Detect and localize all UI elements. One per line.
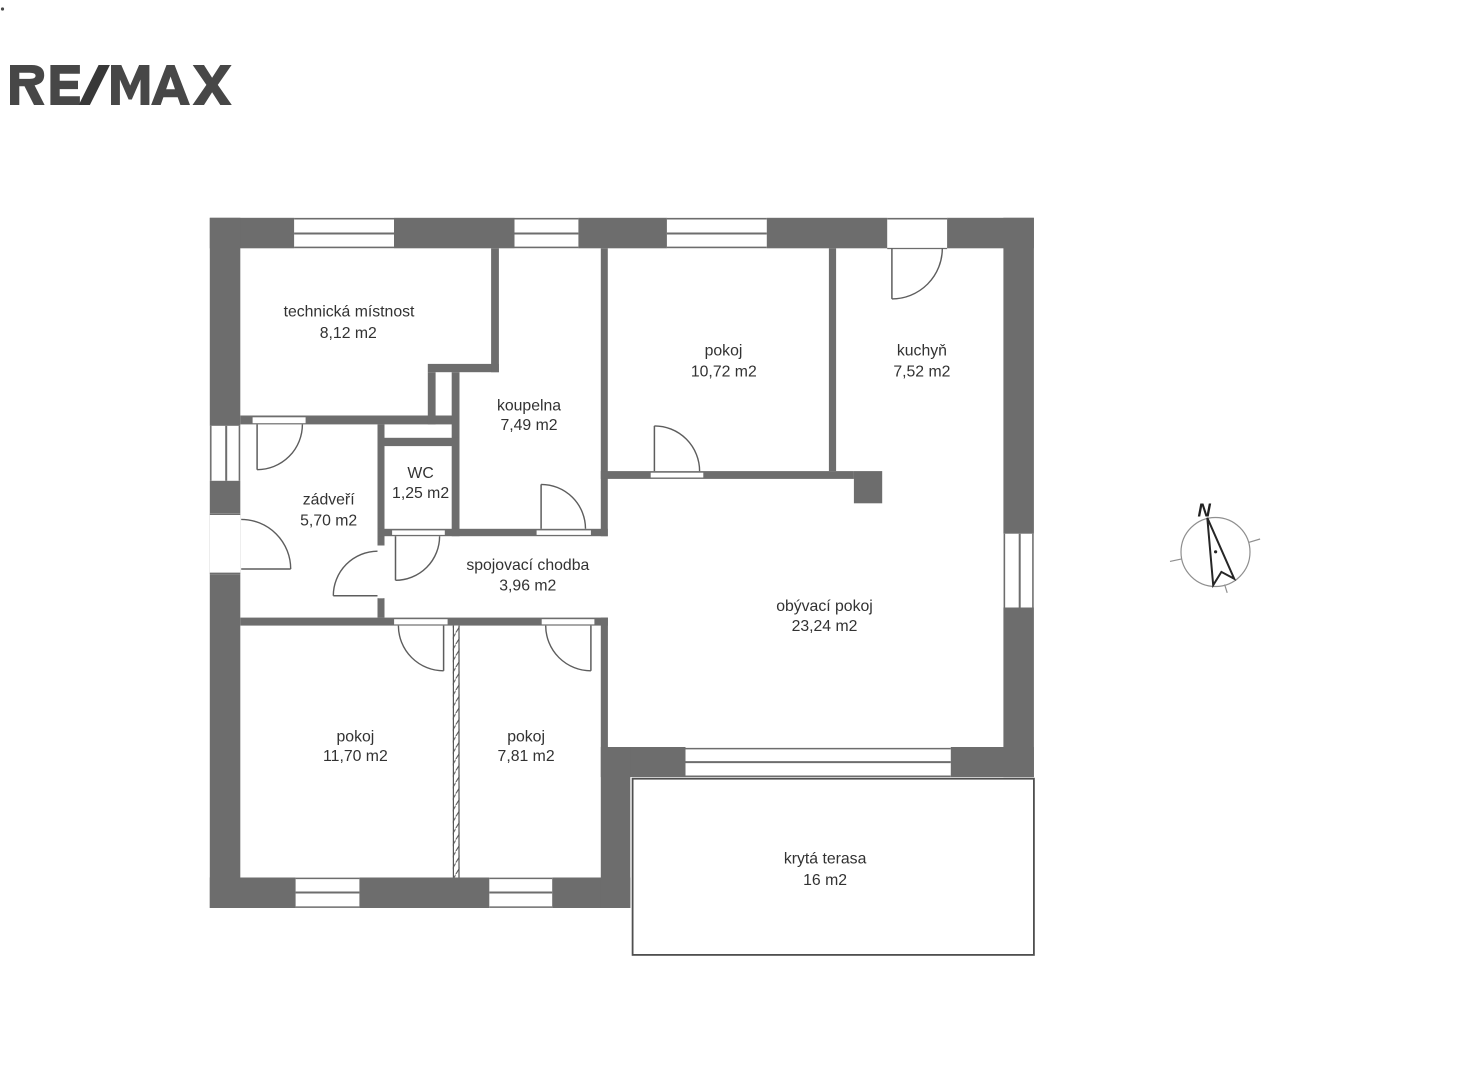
svg-text:pokoj: pokoj (507, 729, 545, 746)
svg-text:11,70 m2: 11,70 m2 (323, 748, 388, 765)
svg-text:N: N (1198, 499, 1212, 520)
svg-text:kuchyň: kuchyň (897, 343, 947, 360)
svg-text:7,81 m2: 7,81 m2 (498, 748, 555, 765)
svg-text:3,96 m2: 3,96 m2 (499, 578, 556, 595)
svg-text:WC: WC (407, 465, 433, 482)
svg-text:pokoj: pokoj (337, 729, 375, 746)
svg-text:pokoj: pokoj (705, 343, 743, 360)
svg-text:8,12 m2: 8,12 m2 (320, 325, 377, 342)
svg-text:zádveří: zádveří (303, 492, 355, 509)
svg-text:technická místnost: technická místnost (284, 303, 415, 320)
svg-text:spojovací chodba: spojovací chodba (466, 557, 589, 574)
svg-text:16 m2: 16 m2 (803, 872, 847, 889)
svg-text:7,52 m2: 7,52 m2 (893, 364, 950, 381)
svg-text:10,72 m2: 10,72 m2 (691, 364, 757, 381)
svg-text:5,70 m2: 5,70 m2 (300, 512, 357, 529)
svg-text:obývací pokoj: obývací pokoj (776, 598, 873, 615)
svg-text:krytá terasa: krytá terasa (784, 851, 867, 868)
svg-text:7,49 m2: 7,49 m2 (500, 417, 557, 434)
svg-text:koupelna: koupelna (497, 398, 561, 415)
svg-text:23,24 m2: 23,24 m2 (792, 618, 858, 635)
svg-text:1,25 m2: 1,25 m2 (392, 485, 449, 502)
